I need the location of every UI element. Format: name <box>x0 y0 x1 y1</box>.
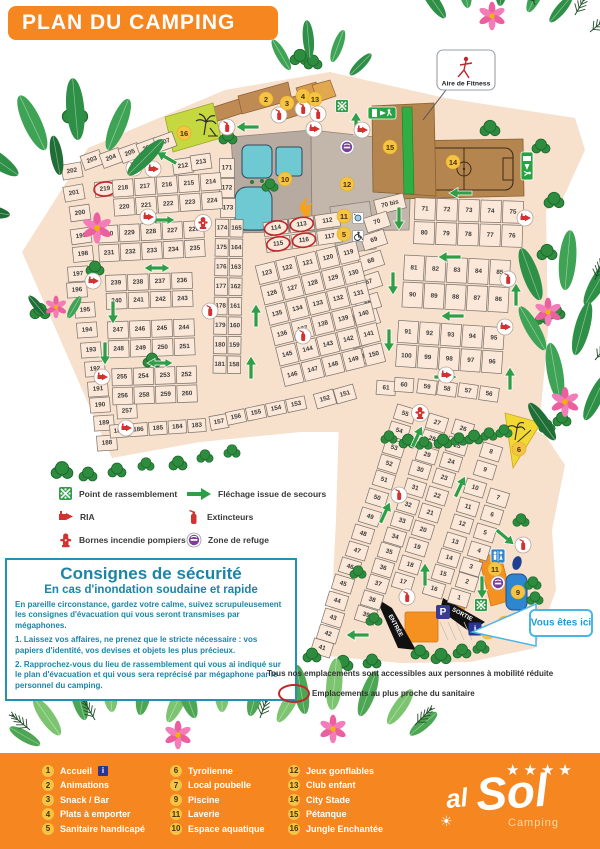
plot-cell: 257 <box>117 403 138 419</box>
svg-text:89: 89 <box>430 292 438 299</box>
facility-label: Club enfant <box>306 780 356 790</box>
facility-badge-5: 5 <box>337 227 351 241</box>
svg-text:81: 81 <box>410 264 418 271</box>
laundry-icon <box>353 213 364 224</box>
svg-text:177: 177 <box>216 283 227 290</box>
svg-text:97: 97 <box>467 357 475 365</box>
facility-badge-15: 15 <box>383 140 397 154</box>
svg-text:198: 198 <box>77 250 89 258</box>
campsite-map: ENTRÉESORTIE2022012001991981971961951941… <box>0 0 600 849</box>
leaf-decoration <box>568 300 597 357</box>
tree-icon <box>169 456 187 470</box>
svg-text:112: 112 <box>322 217 334 225</box>
facility-label: Espace aquatique <box>188 824 265 834</box>
camping-plan-poster: ENTRÉESORTIE2022012001991981971961951941… <box>0 0 600 849</box>
svg-text:196: 196 <box>72 286 83 294</box>
svg-text:186: 186 <box>133 426 144 434</box>
svg-text:158: 158 <box>229 361 240 368</box>
svg-text:165: 165 <box>231 225 242 232</box>
facility-number-badge: 9 <box>170 794 182 806</box>
svg-text:79: 79 <box>443 230 451 237</box>
svg-text:180: 180 <box>215 341 226 348</box>
legend-label: RIA <box>80 512 95 522</box>
svg-text:245: 245 <box>157 325 168 332</box>
facility-label: Local poubelle <box>188 780 251 790</box>
svg-text:231: 231 <box>104 249 115 257</box>
ext-icon <box>500 271 516 287</box>
ria-icon <box>94 369 110 385</box>
safety-subtitle: En cas d'inondation soudaine et rapide <box>15 584 287 596</box>
plot-cell: 223 <box>179 193 201 211</box>
plot-cell: 248 <box>108 340 129 358</box>
svg-text:94: 94 <box>469 333 477 341</box>
plot-cell: 213 <box>190 153 212 171</box>
facility-item-4: 4Plats à emporter <box>42 809 170 820</box>
refuge-icon <box>340 140 354 154</box>
plot-cell: 252 <box>176 366 197 384</box>
facility-item-3: 3Snack / Bar <box>42 794 170 805</box>
svg-text:14: 14 <box>449 158 458 167</box>
leaf-decoration <box>546 0 576 25</box>
plot-cell: 60 <box>394 377 414 392</box>
svg-text:86: 86 <box>495 296 503 303</box>
svg-text:248: 248 <box>113 345 124 352</box>
plot-cell: 193 <box>81 342 102 358</box>
flower-icon <box>319 715 347 743</box>
facility-badge-9: 9 <box>511 585 525 599</box>
svg-text:72: 72 <box>443 206 451 213</box>
plot-cell: 72 <box>436 198 457 221</box>
facility-number-badge: 10 <box>170 823 182 835</box>
assembly-icon <box>336 100 349 113</box>
plot-cell: 217 <box>134 177 156 195</box>
svg-text:249: 249 <box>135 345 146 352</box>
logo-sol: Sol <box>474 763 549 822</box>
svg-text:188: 188 <box>102 439 113 447</box>
leaf-decoration <box>579 372 600 423</box>
svg-text:161: 161 <box>230 303 241 310</box>
svg-text:237: 237 <box>155 278 166 285</box>
svg-text:13: 13 <box>311 95 319 104</box>
svg-text:232: 232 <box>125 248 136 256</box>
plot-cell: 196 <box>67 282 88 298</box>
svg-text:179: 179 <box>215 322 226 329</box>
facility-number-badge: 5 <box>42 823 54 835</box>
legend-label: Extincteurs <box>207 512 253 522</box>
svg-text:P: P <box>440 607 447 618</box>
svg-text:60: 60 <box>400 381 408 389</box>
svg-text:78: 78 <box>465 231 473 238</box>
ext-icon <box>202 303 218 319</box>
svg-text:116: 116 <box>298 236 310 244</box>
svg-text:91: 91 <box>404 328 412 336</box>
facility-badge-2: 2 <box>259 92 273 106</box>
svg-text:90: 90 <box>409 291 417 298</box>
plot-cell: 74 <box>480 200 501 223</box>
plot-cell: 183 <box>187 418 206 432</box>
plot-cell: 161 <box>228 297 241 315</box>
facility-label: Jungle Enchantée <box>306 824 383 834</box>
svg-text:93: 93 <box>447 331 455 339</box>
page-title-bar: PLAN DU CAMPING <box>8 6 278 40</box>
ria-icon <box>58 509 74 524</box>
plot-cell: 179 <box>214 317 227 335</box>
svg-text:250: 250 <box>157 344 168 351</box>
svg-text:82: 82 <box>432 265 440 272</box>
svg-text:175: 175 <box>216 244 227 251</box>
facility-badge-10: 10 <box>278 172 292 186</box>
facility-badge-11: 11 <box>488 562 502 576</box>
legend-item-extincteur: Extincteurs <box>186 509 358 525</box>
svg-text:252: 252 <box>181 371 192 378</box>
facility-item-7: 7Local poubelle <box>170 780 288 791</box>
plot-cell: 202 <box>61 162 83 180</box>
svg-text:73: 73 <box>465 207 473 214</box>
plot-cell: 184 <box>168 420 187 434</box>
plot-cell: 113 <box>289 216 315 233</box>
svg-text:244: 244 <box>179 324 190 331</box>
tree-icon <box>51 462 73 479</box>
svg-text:191: 191 <box>93 385 104 393</box>
plot-cell: 246 <box>129 320 150 338</box>
svg-text:185: 185 <box>152 424 163 432</box>
plot-cell: 71 <box>414 198 435 221</box>
svg-text:10: 10 <box>281 175 289 184</box>
sanitaire-note: Emplacements au plus proche du sanitaire <box>312 689 475 698</box>
plot-cell: 92 <box>419 322 440 345</box>
facility-label: Sanitaire handicapé <box>60 824 145 834</box>
svg-text:229: 229 <box>124 229 135 237</box>
plot-cell: 220 <box>114 198 136 216</box>
flower-icon <box>478 2 506 30</box>
svg-text:246: 246 <box>135 326 146 333</box>
plot-cell: 116 <box>291 232 317 249</box>
legend-item-exit-arrow: Fléchage issue de secours <box>186 487 358 501</box>
svg-text:234: 234 <box>168 246 179 254</box>
logo-sub: Camping <box>508 817 559 829</box>
facility-number-badge: 14 <box>288 794 300 806</box>
leaf-decoration <box>494 0 511 7</box>
plot-cell: 253 <box>155 367 176 385</box>
sanitaire-circle-icon <box>278 684 310 703</box>
svg-text:255: 255 <box>117 373 128 380</box>
facility-number-badge: 6 <box>170 765 182 777</box>
plot-cell: 56 <box>479 386 500 403</box>
svg-text:260: 260 <box>182 390 193 397</box>
svg-text:2: 2 <box>264 95 268 104</box>
plot-cell: 233 <box>142 242 163 260</box>
plot-cell: 159 <box>228 336 241 354</box>
plot-cell: 256 <box>112 387 133 405</box>
plot-cell: 231 <box>99 244 120 262</box>
ext-icon <box>399 589 415 605</box>
plot-cell: 83 <box>446 257 467 283</box>
plot-cell: 115 <box>265 235 291 252</box>
plot-cell: 163 <box>229 258 242 276</box>
svg-text:164: 164 <box>231 244 242 251</box>
plot-cell: 73 <box>458 199 479 222</box>
plot-cell: 247 <box>107 321 128 339</box>
facility-badge-4: 4 <box>296 89 310 103</box>
svg-text:233: 233 <box>147 247 158 255</box>
plot-cell: 114 <box>263 219 289 236</box>
plot-cell: 87 <box>466 285 487 311</box>
svg-text:258: 258 <box>139 392 150 399</box>
svg-text:176: 176 <box>216 263 227 270</box>
assembly-point-icon <box>58 486 73 501</box>
svg-text:59: 59 <box>423 383 431 391</box>
svg-text:216: 216 <box>161 181 172 189</box>
plot-cell: 91 <box>397 320 418 343</box>
svg-text:113: 113 <box>296 220 308 228</box>
svg-text:243: 243 <box>177 295 188 302</box>
facilities-column-3: 12Jeux gonflables13Club enfant14City Sta… <box>288 765 416 834</box>
plot-cell: 228 <box>141 223 162 241</box>
svg-text:259: 259 <box>160 391 171 398</box>
svg-text:224: 224 <box>207 197 218 205</box>
leaf-decoration <box>268 37 294 72</box>
svg-text:242: 242 <box>155 296 166 303</box>
svg-text:228: 228 <box>146 228 157 236</box>
leaf-decoration <box>523 0 551 15</box>
plot-cell: 59 <box>417 379 438 395</box>
svg-text:251: 251 <box>179 343 190 350</box>
plot-cell: 238 <box>127 274 148 291</box>
plot-cell: 99 <box>417 346 438 369</box>
svg-text:254: 254 <box>138 373 149 380</box>
plot-cell: 258 <box>134 386 155 404</box>
plot-cell: 79 <box>436 222 457 245</box>
plot-cell: 242 <box>150 291 171 308</box>
plot-cell: 98 <box>438 347 459 370</box>
plot-cell: 80 <box>414 222 435 245</box>
plot-cell: 214 <box>200 173 222 191</box>
facility-item-15: 15Pétanque <box>288 809 416 820</box>
svg-text:238: 238 <box>133 279 144 286</box>
plot-cell: 240 <box>106 293 127 310</box>
ria-icon <box>85 273 101 289</box>
facility-label: Accueil <box>60 766 92 776</box>
facility-number-badge: 7 <box>170 779 182 791</box>
facility-item-13: 13Club enfant <box>288 780 416 791</box>
plot-cell: 175 <box>215 239 228 257</box>
assembly-icon <box>475 599 488 612</box>
palm-frond-icon <box>590 336 600 364</box>
facility-label: Jeux gonflables <box>306 766 374 776</box>
logo-al: al <box>444 782 469 815</box>
plot-cell: 243 <box>172 290 193 307</box>
plot-cell: 200 <box>69 204 91 222</box>
svg-text:12: 12 <box>343 180 351 189</box>
ext-icon <box>515 537 531 553</box>
leaf-decoration <box>11 92 53 154</box>
svg-text:11: 11 <box>340 212 348 221</box>
plot-cell: 254 <box>133 367 154 385</box>
ria-icon <box>497 319 513 335</box>
plot-cell: 260 <box>177 385 198 403</box>
plot-cell: 255 <box>112 368 133 386</box>
legend-label: Fléchage issue de secours <box>218 489 326 499</box>
leaf-decoration <box>64 77 87 140</box>
ria-icon <box>438 367 454 383</box>
facility-label: Pétanque <box>306 809 347 819</box>
ext-icon <box>219 119 235 135</box>
svg-text:15: 15 <box>386 143 394 152</box>
wc-icon <box>491 549 505 563</box>
svg-text:11: 11 <box>491 565 499 574</box>
safety-instructions-box: Consignes de sécurité En cas d'inondatio… <box>5 558 297 701</box>
facility-item-1: 1Accueili <box>42 765 170 776</box>
facility-number-badge: 12 <box>288 765 300 777</box>
plot-cell: 160 <box>228 317 241 335</box>
ria-icon <box>354 122 370 138</box>
svg-text:171: 171 <box>222 165 233 172</box>
facility-item-5: 5Sanitaire handicapé <box>42 823 170 834</box>
facility-label: Piscine <box>188 795 220 805</box>
plot-cell: 81 <box>403 255 424 281</box>
plot-cell: 235 <box>184 239 205 257</box>
plot-cell: 61 <box>376 380 396 395</box>
plot-cell: 176 <box>215 258 228 276</box>
plot-cell: 96 <box>481 350 502 373</box>
ria-icon <box>140 209 156 225</box>
svg-text:75: 75 <box>509 208 517 215</box>
hydrant-icon <box>195 215 212 232</box>
svg-text:239: 239 <box>111 279 122 286</box>
facilities-columns: 1Accueili2Animations3Snack / Bar4Plats à… <box>42 765 416 834</box>
svg-text:223: 223 <box>185 198 196 206</box>
svg-text:88: 88 <box>452 294 460 301</box>
legend-label: Point de rassemblement <box>79 489 177 499</box>
ext-icon <box>295 101 311 117</box>
facilities-column-2: 6Tyrolienne7Local poubelle9Piscine11Lave… <box>170 765 288 834</box>
ria-icon <box>118 420 134 436</box>
facility-label: Tyrolienne <box>188 766 233 776</box>
facility-badge-14: 14 <box>446 155 460 169</box>
facility-item-12: 12Jeux gonflables <box>288 765 416 776</box>
safety-item-2: 2. Rapprochez-vous du lieu de rassemblem… <box>15 660 287 691</box>
plot-cell: 234 <box>163 241 184 259</box>
leaf-decoration <box>454 0 474 9</box>
facility-item-16: 16Jungle Enchantée <box>288 823 416 834</box>
plot-cell: 244 <box>173 319 194 337</box>
fitness-strip <box>402 107 414 194</box>
page-title: PLAN DU CAMPING <box>22 11 235 35</box>
plot-cell: 84 <box>468 258 489 284</box>
plot-cell: 94 <box>462 325 483 348</box>
svg-text:235: 235 <box>189 245 200 253</box>
svg-text:61: 61 <box>382 384 390 392</box>
svg-text:193: 193 <box>86 346 97 354</box>
leaf-decoration <box>557 229 579 290</box>
svg-text:95: 95 <box>490 334 498 342</box>
plot-cell: 198 <box>72 245 93 262</box>
svg-text:256: 256 <box>117 392 128 399</box>
facility-item-2: 2Animations <box>42 780 170 791</box>
svg-text:215: 215 <box>183 180 194 188</box>
facility-label: Snack / Bar <box>60 795 109 805</box>
svg-text:84: 84 <box>475 268 483 275</box>
svg-text:117: 117 <box>324 232 336 240</box>
plot-cell: 76 <box>501 225 522 248</box>
svg-text:181: 181 <box>214 361 225 368</box>
safety-intro: En pareille circonstance, gardez votre c… <box>15 600 287 631</box>
svg-text:Vous êtes ici: Vous êtes ici <box>531 618 592 629</box>
safety-item-1: 1. Laissez vos affaires, ne prenez que l… <box>15 635 287 656</box>
svg-text:98: 98 <box>445 355 453 363</box>
wheelchair-icon <box>353 231 364 242</box>
svg-text:236: 236 <box>177 277 188 284</box>
tree-icon <box>197 450 213 463</box>
hydrant-icon <box>58 532 73 548</box>
legend-item-ria: RIA <box>58 509 186 524</box>
svg-text:77: 77 <box>486 232 494 239</box>
refuge-icon <box>491 576 505 590</box>
exitV-icon <box>521 152 533 180</box>
plot-cell: 97 <box>460 349 481 372</box>
plot-cell: 112 <box>314 212 340 229</box>
svg-text:257: 257 <box>122 407 133 415</box>
leaf-decoration <box>7 723 43 750</box>
facility-item-6: 6Tyrolienne <box>170 765 288 776</box>
plot-cell: 171 <box>220 159 235 178</box>
plot-cell: 93 <box>440 323 461 346</box>
tree-icon <box>108 463 126 477</box>
facility-label: City Stade <box>306 795 350 805</box>
extinguisher-icon <box>186 509 201 525</box>
plot-cell: 241 <box>128 292 149 309</box>
svg-text:3: 3 <box>285 99 289 108</box>
plot-cell: 222 <box>157 195 179 213</box>
plot-cell: 77 <box>479 224 500 247</box>
facility-number-badge: 2 <box>42 779 54 791</box>
facility-item-11: 11Laverie <box>170 809 288 820</box>
legend-item-assembly: Point de rassemblement <box>58 486 186 501</box>
plot-cell: 227 <box>162 222 183 240</box>
ria-icon <box>306 121 322 137</box>
plot-cell: 218 <box>112 179 134 197</box>
plot-cell: 185 <box>148 421 167 435</box>
plot-cell: 90 <box>402 282 423 308</box>
sun-icon: ☀ <box>440 813 453 830</box>
svg-text:87: 87 <box>473 295 481 302</box>
hydrant-icon <box>412 405 429 422</box>
svg-text:115: 115 <box>273 240 285 248</box>
svg-text:183: 183 <box>191 422 202 430</box>
pool-shape <box>242 145 272 178</box>
svg-text:184: 184 <box>172 423 183 431</box>
facility-badge-11: 11 <box>337 209 351 223</box>
plot-cell: 164 <box>230 239 243 257</box>
facility-number-badge: 4 <box>42 808 54 820</box>
ext-icon <box>391 487 407 503</box>
svg-text:76: 76 <box>508 232 516 239</box>
leaf-decoration <box>417 0 450 21</box>
svg-text:80: 80 <box>421 229 429 236</box>
leaf-decoration <box>347 51 375 79</box>
facility-badge-16: 16 <box>177 126 191 140</box>
plot-cell: 229 <box>119 224 140 242</box>
legend-item-hydrant: Bornes incendie pompiers <box>58 532 186 548</box>
svg-text:218: 218 <box>118 184 129 192</box>
plot-cell: 158 <box>227 356 240 374</box>
plot-cell: 216 <box>156 176 178 194</box>
svg-text:194: 194 <box>82 326 93 334</box>
parking-icon: P <box>436 605 450 619</box>
svg-text:16: 16 <box>180 129 188 138</box>
plot-cell: 162 <box>229 278 242 296</box>
svg-text:190: 190 <box>95 401 106 409</box>
